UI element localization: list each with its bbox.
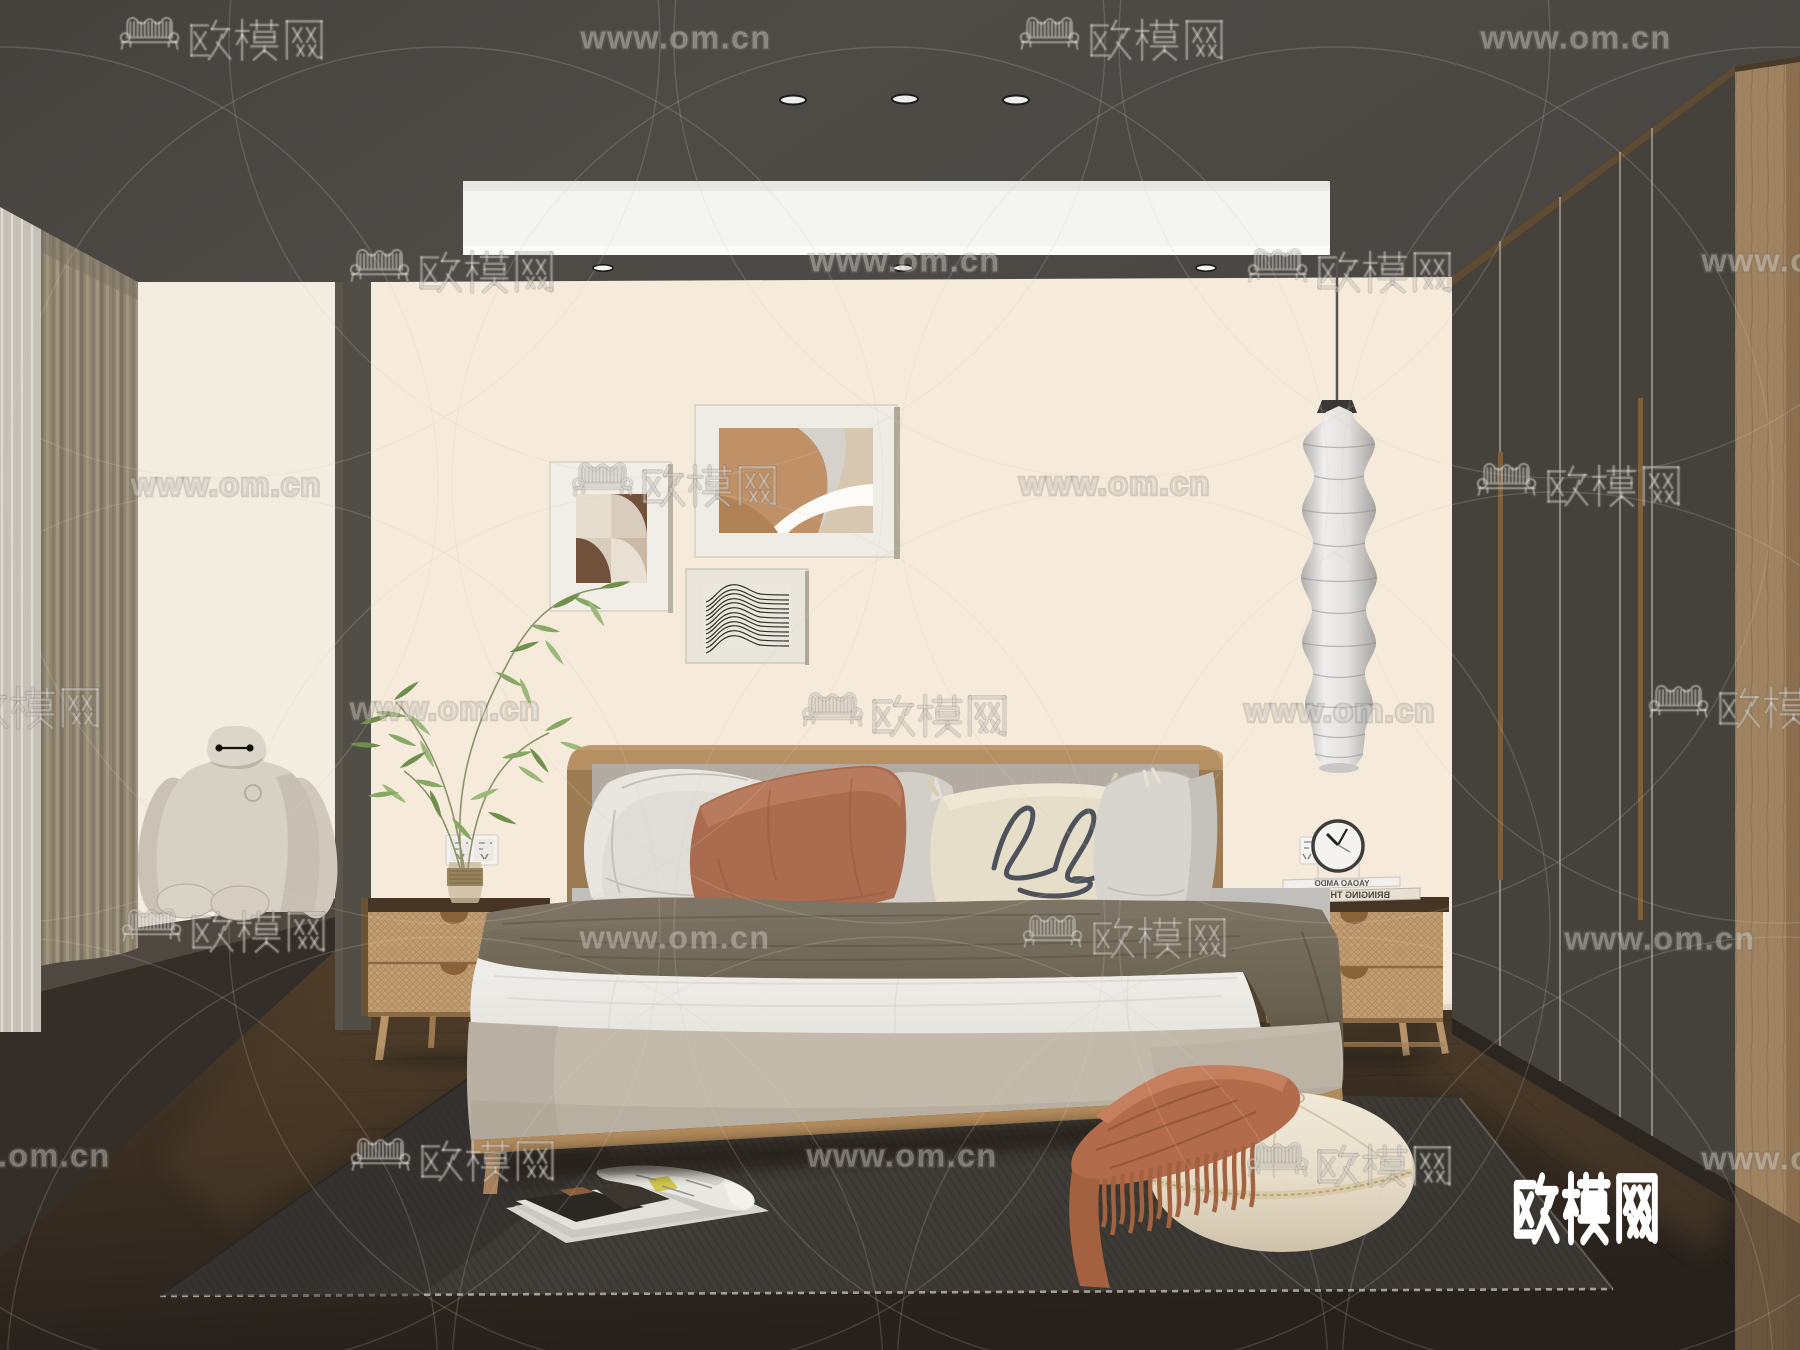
svg-text:www.om.cn: www.om.cn — [808, 243, 1000, 279]
svg-text:www.om.cn: www.om.cn — [348, 691, 540, 727]
svg-text:www.om.cn: www.om.cn — [1700, 243, 1800, 279]
svg-text:www.om.cn: www.om.cn — [1563, 921, 1755, 957]
svg-text:www.om.cn: www.om.cn — [0, 1138, 111, 1174]
svg-text:www.om.cn: www.om.cn — [579, 20, 771, 56]
svg-text:YAOAO AMDO: YAOAO AMDO — [1315, 879, 1370, 888]
svg-text:www.om.cn: www.om.cn — [578, 920, 770, 956]
svg-text:www.om.cn: www.om.cn — [1243, 693, 1435, 729]
svg-text:www.om.cn: www.om.cn — [129, 467, 321, 503]
svg-text:www.om.cn: www.om.cn — [1700, 1141, 1800, 1177]
svg-text:www.om.cn: www.om.cn — [805, 1138, 997, 1174]
svg-text:www.om.cn: www.om.cn — [1479, 20, 1671, 56]
svg-text:www.om.cn: www.om.cn — [1018, 466, 1210, 502]
